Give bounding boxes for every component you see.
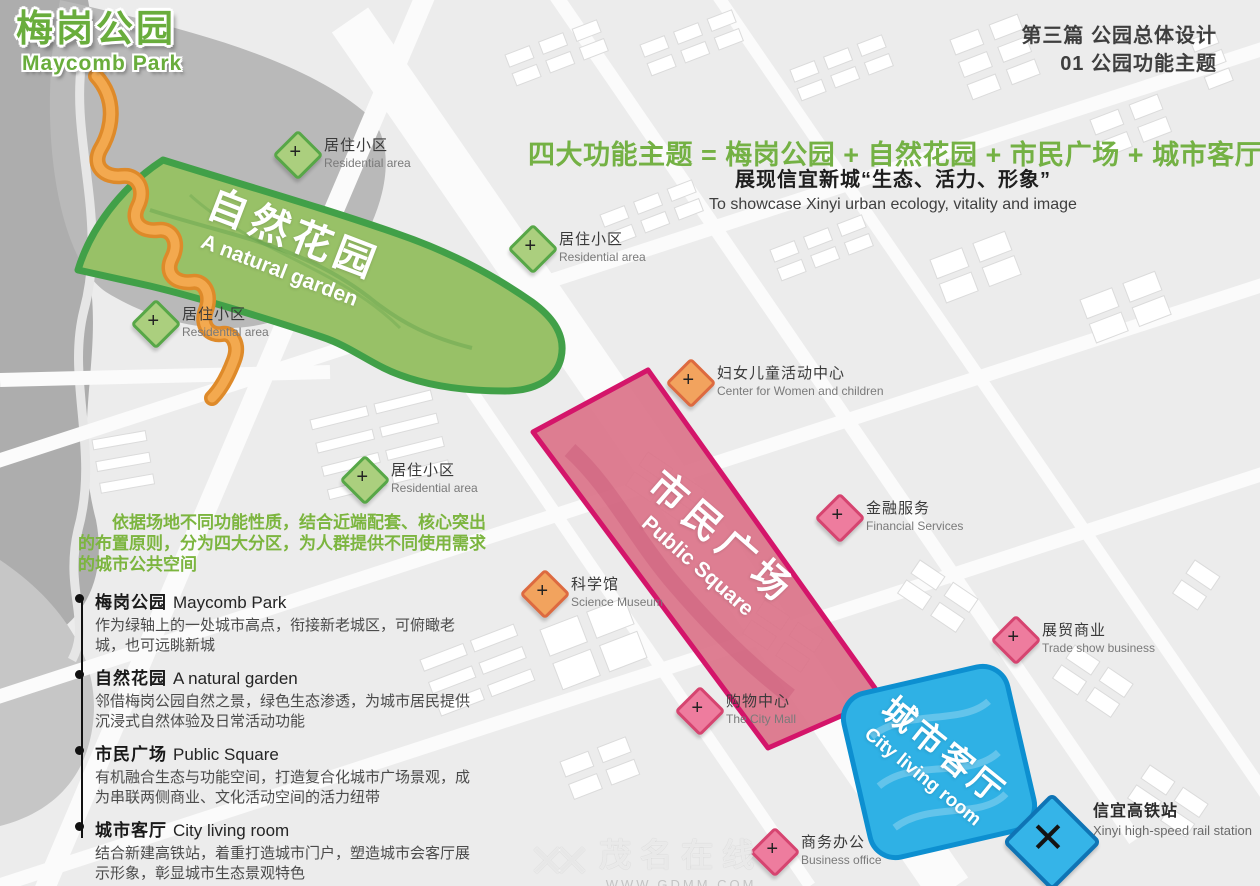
marker-label-en: Center for Women and children [717, 384, 884, 398]
marker-label-en: Business office [801, 853, 882, 867]
plus-icon: + [536, 581, 548, 601]
marker-women-children-center: + 妇女儿童活动中心Center for Women and children [665, 357, 884, 403]
marker-label-en: Science Museum [571, 595, 663, 609]
legend: 梅岗公园Maycomb Park 作为绿轴上的一处城市高点，衔接新老城区，可俯瞰… [70, 588, 480, 886]
marker-label-en: Financial Services [866, 519, 963, 533]
marker-label-en: Xinyi high-speed rail station [1093, 823, 1252, 838]
legend-desc: 邻借梅岗公园自然之景，绿色生态渗透，为城市居民提供沉浸式自然体验及日常活动功能 [95, 692, 480, 732]
page-title-zh: 梅岗公园 [16, 10, 182, 49]
section-header-line1: 第三篇 公园总体设计 [1021, 22, 1217, 50]
diamond-icon: ✕ [1002, 792, 1094, 884]
marker-label-zh: 信宜高铁站 [1093, 797, 1252, 821]
legend-title-zh: 自然花园 [95, 669, 167, 688]
section-header: 第三篇 公园总体设计 01 公园功能主题 [1021, 22, 1217, 78]
marker-city-mall: + 购物中心The City Mall [674, 685, 796, 731]
diamond-icon: + [814, 492, 860, 538]
diamond-icon: + [272, 129, 318, 175]
marker-label-en: The City Mall [726, 712, 796, 726]
legend-desc: 结合新建高铁站，着重打造城市门户，塑造城市会客厅展示形象，彰显城市生态景观特色 [95, 844, 480, 884]
marker-label-en: Residential area [559, 250, 646, 264]
marker-residential-2: + 居住小区Residential area [507, 223, 646, 269]
marker-label-zh: 居住小区 [391, 459, 478, 480]
marker-rail-station: ✕ [1002, 792, 1094, 884]
marker-financial-services: + 金融服务Financial Services [814, 492, 963, 538]
marker-label-zh: 展贸商业 [1042, 619, 1155, 640]
plus-icon: + [147, 311, 159, 331]
marker-label-zh: 金融服务 [866, 497, 963, 518]
marker-label-zh: 居住小区 [559, 228, 646, 249]
legend-title-en: A natural garden [173, 669, 298, 688]
watermark-url: WWW.GDMM.COM [606, 877, 757, 886]
section-header-line2: 01 公园功能主题 [1021, 50, 1217, 78]
legend-title-en: City living room [173, 821, 289, 840]
marker-label-zh: 商务办公 [801, 831, 882, 852]
plus-icon: + [831, 505, 843, 525]
cross-icon: ✕ [1030, 817, 1065, 859]
legend-title-zh: 城市客厅 [95, 821, 167, 840]
plus-icon: + [289, 142, 301, 162]
legend-item-public-square: 市民广场Public Square 有机融合生态与功能空间，打造复合化城市广场景… [95, 740, 480, 808]
marker-trade-show-business: + 展贸商业Trade show business [990, 614, 1155, 660]
bullet-icon [75, 670, 84, 679]
plus-icon: + [1007, 627, 1019, 647]
intro-paragraph: 依据场地不同功能性质，结合近端配套、核心突出的布置原则，分为四大分区，为人群提供… [78, 512, 486, 575]
marker-label-zh: 购物中心 [726, 690, 796, 711]
legend-item-maycomb-park: 梅岗公园Maycomb Park 作为绿轴上的一处城市高点，衔接新老城区，可俯瞰… [95, 588, 480, 656]
marker-label-en: Residential area [391, 481, 478, 495]
plus-icon: + [682, 370, 694, 390]
legend-title-zh: 梅岗公园 [95, 593, 167, 612]
headline-sub-en: To showcase Xinyi urban ecology, vitalit… [530, 196, 1256, 214]
bullet-icon [75, 746, 84, 755]
legend-item-city-living-room: 城市客厅City living room 结合新建高铁站，着重打造城市门户，塑造… [95, 816, 480, 884]
plan-poster: 自然花园 A natural garden 市民广场 Public Square… [0, 0, 1260, 886]
marker-residential-4: + 居住小区Residential area [339, 454, 478, 500]
diamond-icon: + [665, 357, 711, 403]
marker-label-en: Residential area [324, 156, 411, 170]
legend-title-zh: 市民广场 [95, 745, 167, 764]
diamond-icon: + [519, 568, 565, 614]
marker-label-zh: 科学馆 [571, 573, 663, 594]
diamond-icon: + [990, 614, 1036, 660]
headline-subtitle: 展现信宜新城“生态、活力、形象” To showcase Xinyi urban… [530, 163, 1256, 214]
legend-title-en: Public Square [173, 745, 279, 764]
legend-item-natural-garden: 自然花园A natural garden 邻借梅岗公园自然之景，绿色生态渗透，为… [95, 664, 480, 732]
marker-label-zh: 居住小区 [182, 303, 269, 324]
plus-icon: + [524, 236, 536, 256]
marker-business-office: + 商务办公Business office [749, 826, 882, 872]
marker-residential-3: + 居住小区Residential area [130, 298, 269, 344]
legend-desc: 作为绿轴上的一处城市高点，衔接新老城区，可俯瞰老城，也可远眺新城 [95, 616, 480, 656]
page-title-en: Maycomb Park [22, 53, 182, 75]
bullet-icon [75, 822, 84, 831]
diamond-icon: + [130, 298, 176, 344]
marker-science-museum: + 科学馆Science Museum [519, 568, 663, 614]
marker-label-en: Trade show business [1042, 641, 1155, 655]
headline-sub-zh: 展现信宜新城“生态、活力、形象” [530, 163, 1256, 192]
diamond-icon: + [507, 223, 553, 269]
watermark: ✕✕ 茂名在线 WWW.GDMM.COM [528, 830, 763, 886]
marker-label-zh: 妇女儿童活动中心 [717, 362, 884, 383]
bullet-icon [75, 594, 84, 603]
watermark-logo-icon: ✕✕ [528, 834, 577, 886]
marker-label-zh: 居住小区 [324, 134, 411, 155]
diamond-icon: + [674, 685, 720, 731]
legend-rule [81, 600, 83, 838]
plus-icon: + [356, 467, 368, 487]
legend-title-en: Maycomb Park [173, 593, 286, 612]
diamond-icon: + [339, 454, 385, 500]
marker-label-en: Residential area [182, 325, 269, 339]
page-title: 梅岗公园 Maycomb Park [16, 10, 182, 75]
watermark-name: 茂名在线 [599, 830, 763, 876]
marker-residential-1: + 居住小区Residential area [272, 129, 411, 175]
plus-icon: + [766, 839, 778, 859]
rail-station-label: 信宜高铁站 Xinyi high-speed rail station [1093, 797, 1252, 838]
plus-icon: + [691, 698, 703, 718]
legend-desc: 有机融合生态与功能空间，打造复合化城市广场景观，成为串联两侧商业、文化活动空间的… [95, 768, 480, 808]
